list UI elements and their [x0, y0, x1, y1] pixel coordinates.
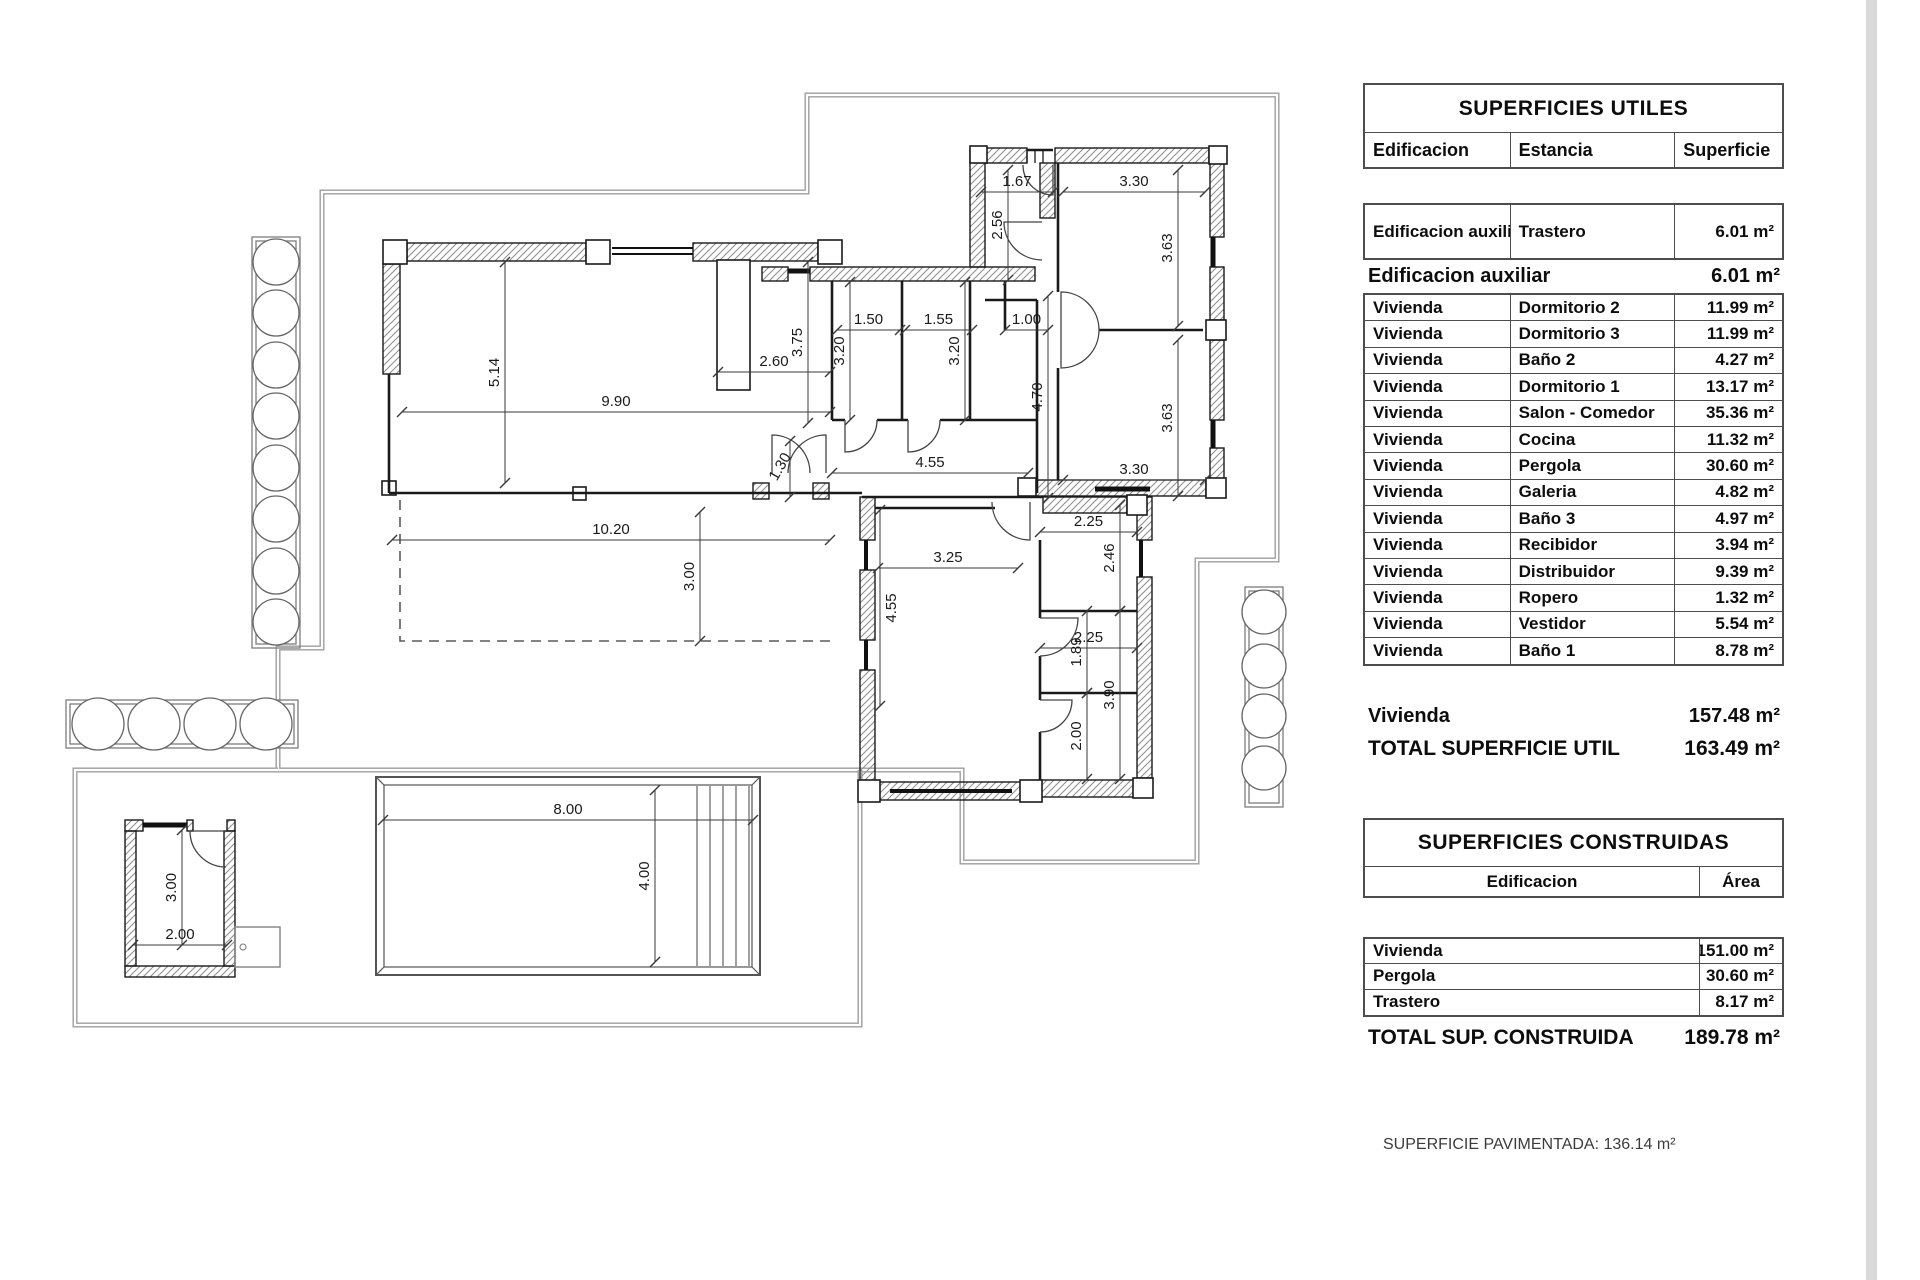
table-cell: 151.00 m²	[1699, 939, 1782, 963]
table-cell: Trastero	[1510, 205, 1675, 258]
table-row: ViviendaCocina11.32 m²	[1365, 427, 1782, 453]
dimension-label: 5.14	[486, 358, 503, 387]
table-row: ViviendaDormitorio 113.17 m²	[1365, 374, 1782, 400]
dimension-label: 2.56	[989, 210, 1006, 239]
table-cell: 4.27 m²	[1674, 348, 1782, 373]
sheet-edge-shadow	[1866, 0, 1877, 1280]
table-cell: Vivienda	[1365, 374, 1510, 399]
table-cell: Galeria	[1510, 480, 1675, 505]
table-cell: 4.82 m²	[1674, 480, 1782, 505]
dimension-label: 1.55	[924, 311, 953, 328]
total-label: TOTAL SUP. CONSTRUIDA	[1368, 1026, 1634, 1050]
plan-sheet: 5.149.902.603.751.503.201.553.201.004.70…	[0, 0, 1920, 1280]
table-row: ViviendaDormitorio 311.99 m²	[1365, 321, 1782, 347]
construidas-total-row: TOTAL SUP. CONSTRUIDA 189.78 m²	[1368, 1021, 1780, 1055]
table-construidas-header: SUPERFICIES CONSTRUIDAS Edificacion Área	[1363, 818, 1784, 898]
table-cell: Baño 2	[1510, 348, 1675, 373]
table-cell: Baño 1	[1510, 638, 1675, 664]
dimension-label: 3.90	[1101, 680, 1118, 709]
table-cell: 30.60 m²	[1674, 453, 1782, 478]
table-construidas-rows: Vivienda151.00 m²Pergola30.60 m²Trastero…	[1363, 937, 1784, 1017]
total-value: 189.78 m²	[1684, 1026, 1780, 1050]
table-row: Vivienda151.00 m²	[1365, 939, 1782, 964]
table-cell: Vivienda	[1365, 533, 1510, 558]
table-cell: 9.39 m²	[1674, 559, 1782, 584]
dimension-label: 2.60	[759, 353, 788, 370]
table-cell: Ropero	[1510, 585, 1675, 610]
dimension-label: 3.63	[1159, 403, 1176, 432]
table-cell: Pergola	[1510, 453, 1675, 478]
table-cell: Salon - Comedor	[1510, 401, 1675, 426]
table-cell: 11.32 m²	[1674, 427, 1782, 452]
door-arc-icon	[190, 831, 226, 867]
subtotal-label: Edificacion auxiliar	[1368, 265, 1550, 288]
table-row: ViviendaDistribuidor9.39 m²	[1365, 559, 1782, 585]
total-label: TOTAL SUPERFICIE UTIL	[1368, 737, 1620, 761]
table-cell: Dormitorio 1	[1510, 374, 1675, 399]
table-row: ViviendaBaño 34.97 m²	[1365, 506, 1782, 532]
table-cell: 6.01 m²	[1674, 205, 1782, 258]
table-row: ViviendaBaño 24.27 m²	[1365, 348, 1782, 374]
table-cell: 11.99 m²	[1674, 321, 1782, 346]
table-cell: 4.97 m²	[1674, 506, 1782, 531]
dimension-label: 3.63	[1159, 233, 1176, 262]
table-cell: 30.60 m²	[1699, 964, 1782, 988]
table-cell: 35.36 m²	[1674, 401, 1782, 426]
table-cell: Vivienda	[1365, 295, 1510, 320]
column-header: Edificacion	[1365, 867, 1699, 896]
subtotal-label: Vivienda	[1368, 705, 1450, 728]
dimension-label: 3.20	[831, 336, 848, 365]
dimension-label: 2.00	[165, 926, 194, 943]
dimension-label: 3.00	[681, 562, 698, 591]
dimension-label: 4.70	[1029, 382, 1046, 411]
table-cell: Vivienda	[1365, 348, 1510, 373]
table-cell: Trastero	[1365, 990, 1699, 1015]
tree-icon	[72, 698, 292, 750]
table-row: ViviendaRopero1.32 m²	[1365, 585, 1782, 611]
table-cell: 11.99 m²	[1674, 295, 1782, 320]
utiles-total-row: TOTAL SUPERFICIE UTIL 163.49 m²	[1368, 733, 1780, 765]
dimension-label: 3.75	[789, 328, 806, 357]
table-cell: Cocina	[1510, 427, 1675, 452]
aux-subtotal-row: Edificacion auxiliar 6.01 m²	[1368, 259, 1780, 293]
dimension-label: 1.67	[1002, 173, 1031, 190]
window-icon	[612, 237, 1213, 791]
table-utiles-title: SUPERFICIES UTILES	[1365, 85, 1782, 133]
table-row: Edificacion auxiliarTrastero6.01 m²	[1365, 205, 1782, 258]
table-cell: 8.17 m²	[1699, 990, 1782, 1015]
dimension-label: 4.55	[883, 593, 900, 622]
table-cell: Dormitorio 3	[1510, 321, 1675, 346]
dimension-label: 2.00	[1068, 721, 1085, 750]
tree-icon	[253, 239, 299, 645]
table-cell: Vivienda	[1365, 638, 1510, 664]
pool-steps	[697, 786, 749, 966]
dimension-label: 1.00	[1012, 311, 1041, 328]
table-cell: 3.94 m²	[1674, 533, 1782, 558]
table-cell: Vivienda	[1365, 427, 1510, 452]
aux-building	[125, 820, 280, 977]
table-row: ViviendaVestidor5.54 m²	[1365, 612, 1782, 638]
subtotal-value: 6.01 m²	[1711, 265, 1780, 288]
table-cell: Vivienda	[1365, 612, 1510, 637]
table-cell: Recibidor	[1510, 533, 1675, 558]
table-cell: Vestidor	[1510, 612, 1675, 637]
dimension-label: 1.50	[854, 311, 883, 328]
table-cell: Dormitorio 2	[1510, 295, 1675, 320]
table-utiles-header: SUPERFICIES UTILES Edificacion Estancia …	[1363, 83, 1784, 169]
paved-area-note: SUPERFICIE PAVIMENTADA: 136.14 m²	[1383, 1136, 1676, 1154]
table-cell: Edificacion auxiliar	[1365, 205, 1510, 258]
table-row: ViviendaRecibidor3.94 m²	[1365, 533, 1782, 559]
column-header: Área	[1699, 867, 1782, 896]
column-header: Edificacion	[1365, 133, 1510, 167]
kitchen-partition	[717, 260, 750, 390]
table-cell: 5.54 m²	[1674, 612, 1782, 637]
table-cell: Baño 3	[1510, 506, 1675, 531]
table-cell: Vivienda	[1365, 321, 1510, 346]
dimension-label: 4.55	[915, 454, 944, 471]
table-cell: Vivienda	[1365, 585, 1510, 610]
table-row: ViviendaPergola30.60 m²	[1365, 453, 1782, 479]
table-cell: Vivienda	[1365, 559, 1510, 584]
table-utiles-rows: ViviendaDormitorio 211.99 m²ViviendaDorm…	[1363, 293, 1784, 666]
table-utiles-aux-rows: Edificacion auxiliarTrastero6.01 m²	[1363, 203, 1784, 260]
subtotal-value: 157.48 m²	[1689, 705, 1780, 728]
dimension-label: 4.00	[636, 861, 653, 890]
dimension-label: 10.20	[592, 521, 630, 538]
table-cell: Vivienda	[1365, 480, 1510, 505]
table-row: ViviendaGaleria4.82 m²	[1365, 480, 1782, 506]
table-cell: Vivienda	[1365, 939, 1699, 963]
dimension-label: 9.90	[601, 393, 630, 410]
table-cell: Vivienda	[1365, 401, 1510, 426]
table-cell: Vivienda	[1365, 453, 1510, 478]
dimension-label: 8.00	[553, 801, 582, 818]
column-header: Estancia	[1510, 133, 1675, 167]
table-row: ViviendaDormitorio 211.99 m²	[1365, 295, 1782, 321]
aux-porch	[235, 927, 280, 967]
table-row: Trastero8.17 m²	[1365, 990, 1782, 1015]
dimension-label: 3.30	[1119, 173, 1148, 190]
table-row: ViviendaSalon - Comedor35.36 m²	[1365, 401, 1782, 427]
table-cell: 8.78 m²	[1674, 638, 1782, 664]
dimension-label: 2.25	[1074, 513, 1103, 530]
column-header: Superficie	[1674, 133, 1782, 167]
dimension-label: 3.00	[163, 873, 180, 902]
vivienda-subtotal-row: Vivienda 157.48 m²	[1368, 701, 1780, 731]
table-cell: Vivienda	[1365, 506, 1510, 531]
dimension-label: 3.25	[933, 549, 962, 566]
table-cell: 1.32 m²	[1674, 585, 1782, 610]
table-cell: 13.17 m²	[1674, 374, 1782, 399]
table-cell: Distribuidor	[1510, 559, 1675, 584]
dimension-label: 1.89	[1068, 637, 1085, 666]
dimension-label: 2.46	[1101, 543, 1118, 572]
dimension-label: 3.30	[1119, 461, 1148, 478]
total-value: 163.49 m²	[1684, 737, 1780, 761]
entry-steps	[1027, 150, 1043, 163]
table-construidas-title: SUPERFICIES CONSTRUIDAS	[1365, 820, 1782, 867]
dimension-label: 3.20	[946, 336, 963, 365]
table-row: Pergola30.60 m²	[1365, 964, 1782, 989]
table-row: ViviendaBaño 18.78 m²	[1365, 638, 1782, 664]
table-cell: Pergola	[1365, 964, 1699, 988]
